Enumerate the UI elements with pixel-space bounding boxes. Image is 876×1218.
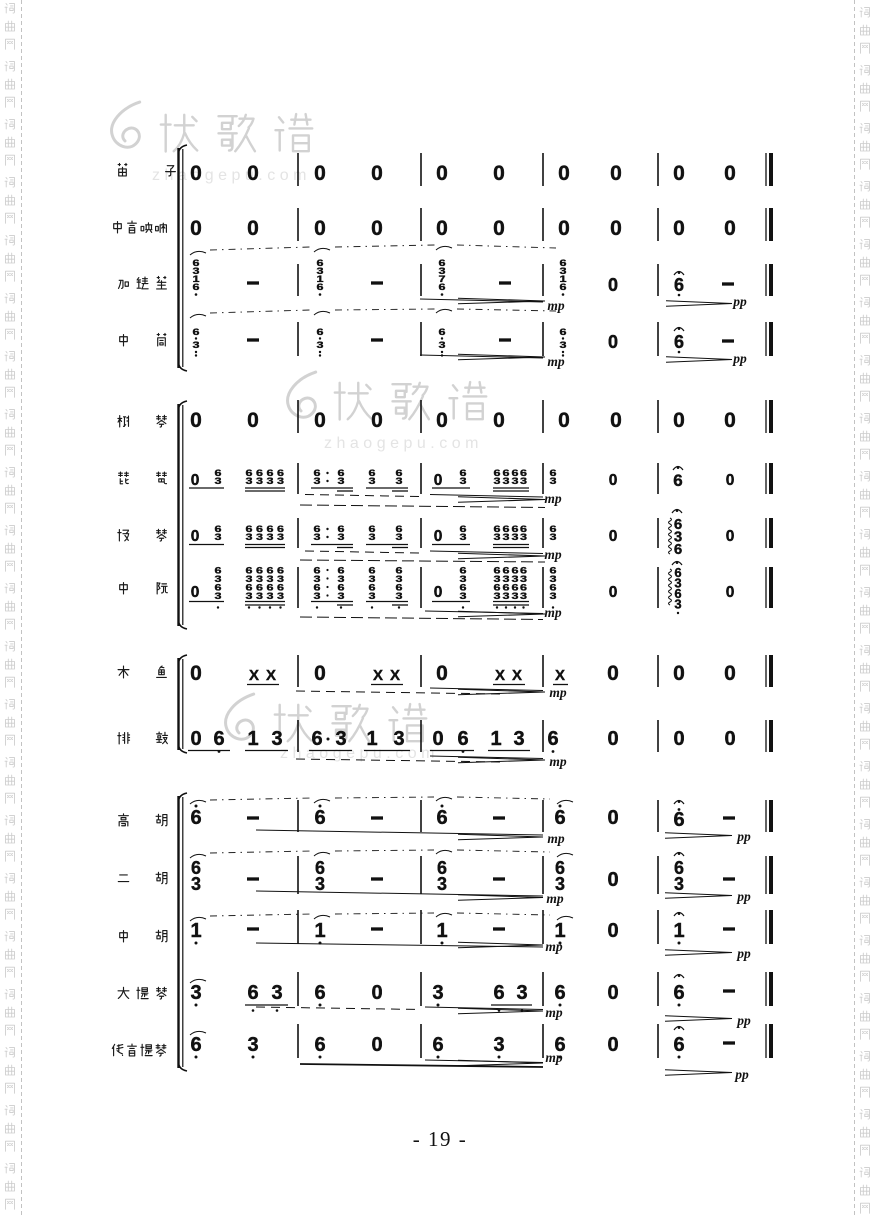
svg-text:mp: mp: [545, 1005, 563, 1020]
svg-text:0: 0: [190, 162, 202, 185]
svg-text:3: 3: [395, 476, 402, 486]
svg-text:6: 6: [674, 541, 682, 558]
svg-text:0: 0: [190, 728, 201, 750]
svg-text:3: 3: [493, 532, 500, 542]
svg-text:6: 6: [192, 282, 199, 292]
svg-text:3: 3: [368, 532, 375, 542]
svg-text:3: 3: [256, 476, 263, 486]
svg-text:X: X: [390, 667, 400, 684]
svg-text:3: 3: [190, 982, 201, 1004]
svg-text:0: 0: [607, 869, 618, 891]
svg-text:3: 3: [271, 728, 282, 750]
svg-text:0: 0: [609, 528, 618, 545]
svg-text:0: 0: [247, 162, 259, 185]
svg-text:X: X: [373, 667, 383, 684]
svg-text:0: 0: [436, 409, 448, 432]
svg-text:0: 0: [247, 217, 259, 240]
svg-text:0: 0: [314, 409, 326, 432]
svg-text:3: 3: [315, 874, 325, 894]
svg-text:0: 0: [371, 1034, 382, 1056]
svg-text:6: 6: [314, 982, 325, 1004]
svg-text:3: 3: [191, 874, 201, 894]
svg-text:0: 0: [191, 584, 200, 601]
svg-text:zhaogepu.com: zhaogepu.com: [324, 435, 483, 452]
svg-text:0: 0: [724, 662, 736, 685]
svg-text:6: 6: [190, 807, 201, 829]
svg-text:6: 6: [559, 282, 566, 292]
svg-text:6: 6: [316, 327, 323, 337]
svg-text:6: 6: [438, 282, 445, 292]
svg-text:X: X: [495, 667, 505, 684]
svg-text:mp: mp: [549, 754, 567, 769]
svg-text:0: 0: [493, 162, 505, 185]
svg-text:3: 3: [520, 532, 527, 542]
svg-text:0: 0: [724, 409, 736, 432]
svg-text:3: 3: [277, 591, 284, 601]
svg-text:3: 3: [549, 532, 556, 542]
svg-text:0: 0: [371, 162, 383, 185]
svg-text:6: 6: [673, 1034, 684, 1056]
svg-text:6: 6: [674, 275, 684, 295]
svg-text:1: 1: [314, 920, 325, 942]
svg-text:0: 0: [493, 217, 505, 240]
svg-text:0: 0: [434, 584, 443, 601]
svg-text:3: 3: [493, 591, 500, 601]
svg-text:6: 6: [314, 1034, 325, 1056]
svg-text:3: 3: [393, 728, 404, 750]
svg-text:0: 0: [558, 162, 570, 185]
svg-text:3: 3: [214, 532, 221, 542]
svg-text:mp: mp: [544, 605, 562, 620]
svg-text:3: 3: [502, 591, 509, 601]
svg-text:3: 3: [313, 591, 320, 601]
svg-text:0: 0: [190, 409, 202, 432]
svg-text:0: 0: [191, 472, 200, 489]
svg-text:3: 3: [316, 340, 323, 350]
svg-text:mp: mp: [547, 831, 565, 846]
svg-text:pp: pp: [736, 889, 751, 904]
svg-text:3: 3: [266, 476, 273, 486]
svg-text:3: 3: [256, 532, 263, 542]
svg-text:3: 3: [520, 591, 527, 601]
svg-text:3: 3: [368, 591, 375, 601]
svg-text:3: 3: [511, 476, 518, 486]
svg-text:3: 3: [313, 532, 320, 542]
svg-text:pp: pp: [734, 1067, 749, 1082]
svg-text:6: 6: [674, 332, 684, 352]
svg-text:6: 6: [436, 807, 447, 829]
svg-text:0: 0: [726, 472, 735, 489]
svg-text:0: 0: [608, 332, 618, 352]
svg-text:3: 3: [459, 476, 466, 486]
svg-text:0: 0: [724, 217, 736, 240]
svg-text:mp: mp: [547, 354, 565, 369]
svg-text:0: 0: [607, 920, 618, 942]
svg-text:- 19 -: - 19 -: [413, 1127, 468, 1151]
svg-text:3: 3: [437, 874, 447, 894]
svg-text:0: 0: [607, 662, 619, 685]
svg-text:6: 6: [247, 982, 258, 1004]
svg-text:0: 0: [371, 409, 383, 432]
svg-text:6: 6: [673, 471, 682, 490]
svg-text:1: 1: [490, 728, 501, 750]
svg-text:6: 6: [314, 807, 325, 829]
svg-text:X: X: [249, 667, 259, 684]
svg-text:0: 0: [314, 217, 326, 240]
svg-text:6: 6: [673, 809, 684, 831]
svg-text:0: 0: [610, 162, 622, 185]
svg-text:0: 0: [314, 662, 326, 685]
svg-text:pp: pp: [732, 294, 747, 309]
svg-text:3: 3: [335, 728, 346, 750]
svg-text:mp: mp: [545, 1050, 563, 1065]
svg-text:0: 0: [607, 807, 618, 829]
svg-text:0: 0: [371, 982, 382, 1004]
svg-text:6: 6: [213, 728, 224, 750]
svg-text:0: 0: [673, 162, 685, 185]
svg-text:3: 3: [549, 591, 556, 601]
svg-text:3: 3: [493, 1034, 504, 1056]
svg-text:0: 0: [558, 409, 570, 432]
svg-text:1: 1: [190, 920, 201, 942]
svg-text:6: 6: [192, 327, 199, 337]
svg-text:0: 0: [609, 584, 618, 601]
svg-text:0: 0: [724, 728, 735, 750]
svg-text:pp: pp: [736, 829, 751, 844]
svg-text:3: 3: [432, 982, 443, 1004]
svg-text:3: 3: [511, 591, 518, 601]
svg-text:0: 0: [607, 1034, 618, 1056]
svg-text:0: 0: [673, 728, 684, 750]
svg-text:0: 0: [608, 275, 618, 295]
svg-text:6: 6: [316, 282, 323, 292]
svg-text:0: 0: [610, 409, 622, 432]
svg-text:3: 3: [395, 532, 402, 542]
svg-text:3: 3: [192, 340, 199, 350]
svg-text:6: 6: [554, 807, 565, 829]
svg-text:3: 3: [313, 476, 320, 486]
svg-text:0: 0: [191, 528, 200, 545]
svg-text:6: 6: [438, 327, 445, 337]
svg-text:0: 0: [673, 217, 685, 240]
svg-text:3: 3: [256, 591, 263, 601]
svg-text:6: 6: [673, 982, 684, 1004]
svg-text:0: 0: [673, 662, 685, 685]
svg-text:3: 3: [674, 597, 681, 612]
svg-text:1: 1: [247, 728, 258, 750]
svg-text:0: 0: [726, 528, 735, 545]
svg-text:3: 3: [277, 476, 284, 486]
svg-text:3: 3: [502, 476, 509, 486]
svg-text:3: 3: [459, 532, 466, 542]
svg-text:0: 0: [607, 728, 618, 750]
svg-text:pp: pp: [736, 1013, 751, 1028]
svg-text:mp: mp: [544, 547, 562, 562]
svg-text:0: 0: [247, 409, 259, 432]
svg-text:0: 0: [436, 662, 448, 685]
svg-text:3: 3: [516, 982, 527, 1004]
svg-text:3: 3: [368, 476, 375, 486]
svg-text:X: X: [555, 667, 565, 684]
svg-text:3: 3: [511, 532, 518, 542]
svg-text:3: 3: [513, 728, 524, 750]
svg-text:0: 0: [434, 472, 443, 489]
svg-text:0: 0: [190, 662, 202, 685]
svg-text:3: 3: [559, 340, 566, 350]
svg-text:0: 0: [432, 728, 443, 750]
svg-text:0: 0: [371, 217, 383, 240]
svg-text:mp: mp: [546, 891, 564, 906]
svg-text:mp: mp: [545, 939, 563, 954]
svg-text:3: 3: [395, 591, 402, 601]
svg-text:3: 3: [214, 591, 221, 601]
svg-text:1: 1: [436, 920, 447, 942]
svg-text:6: 6: [190, 1034, 201, 1056]
svg-text:3: 3: [502, 532, 509, 542]
svg-text:3: 3: [266, 532, 273, 542]
svg-text:3: 3: [520, 476, 527, 486]
svg-text:0: 0: [558, 217, 570, 240]
svg-text:6: 6: [311, 728, 322, 750]
svg-text:0: 0: [436, 217, 448, 240]
svg-text:3: 3: [245, 591, 252, 601]
svg-text:3: 3: [459, 591, 466, 601]
svg-text:pp: pp: [736, 946, 751, 961]
svg-text:6: 6: [457, 728, 468, 750]
svg-text:3: 3: [214, 476, 221, 486]
svg-text:6: 6: [547, 728, 558, 750]
svg-text:3: 3: [337, 476, 344, 486]
svg-text:0: 0: [724, 162, 736, 185]
svg-text:pp: pp: [732, 351, 747, 366]
svg-text:0: 0: [190, 217, 202, 240]
svg-text:mp: mp: [544, 491, 562, 506]
svg-text:3: 3: [337, 591, 344, 601]
svg-text:6: 6: [493, 982, 504, 1004]
svg-text:3: 3: [245, 476, 252, 486]
svg-text:0: 0: [609, 472, 618, 489]
svg-text:X: X: [512, 667, 522, 684]
svg-text:3: 3: [266, 591, 273, 601]
svg-text:mp: mp: [549, 685, 567, 700]
svg-text:0: 0: [493, 409, 505, 432]
svg-text:3: 3: [438, 340, 445, 350]
svg-text:3: 3: [245, 532, 252, 542]
svg-text:3: 3: [493, 476, 500, 486]
svg-text:0: 0: [436, 162, 448, 185]
svg-text:0: 0: [314, 162, 326, 185]
svg-text:3: 3: [271, 982, 282, 1004]
svg-text:0: 0: [434, 528, 443, 545]
svg-text:0: 0: [610, 217, 622, 240]
svg-text:6: 6: [559, 327, 566, 337]
svg-text:3: 3: [337, 532, 344, 542]
svg-text:1: 1: [673, 920, 684, 942]
svg-text:X: X: [266, 667, 276, 684]
svg-text:0: 0: [673, 409, 685, 432]
svg-text:6: 6: [554, 982, 565, 1004]
svg-text:zhaogepu.com: zhaogepu.com: [152, 167, 311, 184]
svg-text:3: 3: [674, 874, 684, 894]
svg-text:1: 1: [366, 728, 377, 750]
svg-text:3: 3: [277, 532, 284, 542]
svg-text:6: 6: [432, 1034, 443, 1056]
svg-text:3: 3: [549, 476, 556, 486]
svg-text:0: 0: [726, 584, 735, 601]
svg-text:0: 0: [607, 982, 618, 1004]
svg-text:3: 3: [247, 1034, 258, 1056]
